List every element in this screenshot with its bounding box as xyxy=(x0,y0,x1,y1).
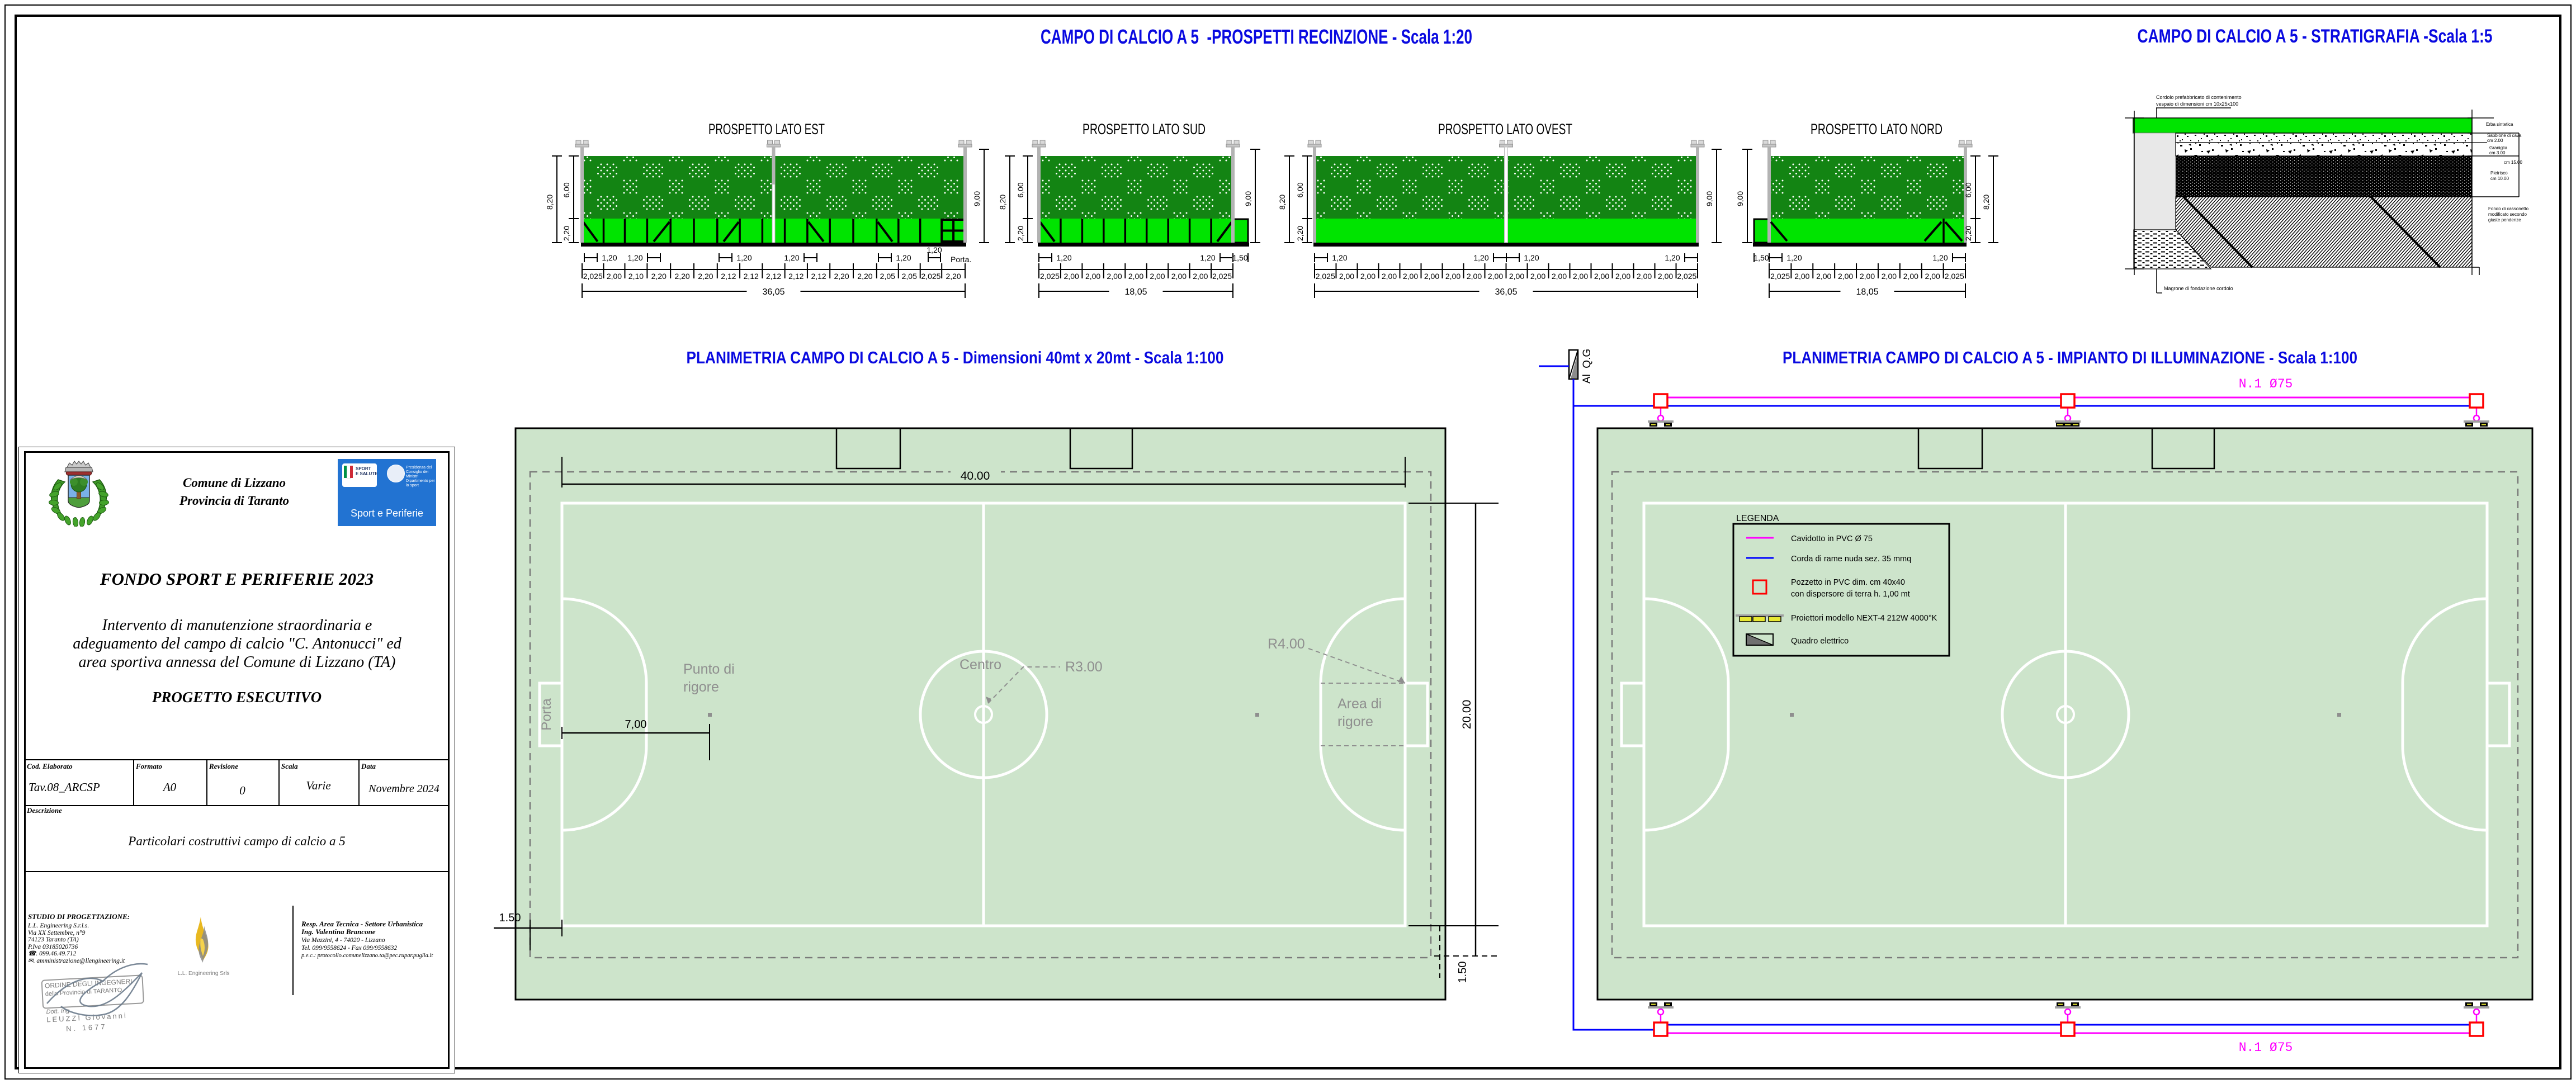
svg-text:2,05: 2,05 xyxy=(880,272,895,281)
svg-text:Quadro elettrico: Quadro elettrico xyxy=(1791,637,1849,646)
svg-text:Pozzetto in PVC dim. cm 40x40: Pozzetto in PVC dim. cm 40x40 xyxy=(1791,578,1905,587)
svg-text:2,025: 2,025 xyxy=(1677,272,1696,281)
svg-text:2,00: 2,00 xyxy=(1838,272,1853,281)
svg-text:Cordolo prefabbricato di conte: Cordolo prefabbricato di contenimento xyxy=(2156,94,2242,100)
svg-text:vespaio di dimensioni cm 10x25: vespaio di dimensioni cm 10x25x100 xyxy=(2156,101,2238,107)
svg-text:1,20: 1,20 xyxy=(1786,253,1802,262)
svg-text:2,20: 2,20 xyxy=(946,272,961,281)
svg-text:modificato secondo: modificato secondo xyxy=(2488,212,2527,217)
svg-text:2,025: 2,025 xyxy=(583,272,603,281)
svg-text:Sabbione di cava: Sabbione di cava xyxy=(2487,133,2522,138)
svg-text:2,12: 2,12 xyxy=(811,272,826,281)
svg-text:cm 10.00: cm 10.00 xyxy=(2490,176,2509,181)
svg-text:N.1 Ø75: N.1 Ø75 xyxy=(2239,1040,2293,1055)
svg-text:6,00: 6,00 xyxy=(1016,182,1025,197)
svg-text:2,00: 2,00 xyxy=(1107,272,1122,281)
svg-text:2,025: 2,025 xyxy=(1316,272,1335,281)
svg-text:18,05: 18,05 xyxy=(1856,287,1878,297)
svg-text:Pietrisco: Pietrisco xyxy=(2490,171,2508,176)
svg-text:2,00: 2,00 xyxy=(1658,272,1673,281)
svg-text:2,00: 2,00 xyxy=(1488,272,1503,281)
svg-text:1,50: 1,50 xyxy=(1753,253,1769,262)
svg-text:8,20: 8,20 xyxy=(545,195,554,210)
svg-text:2,00: 2,00 xyxy=(1445,272,1460,281)
svg-text:1,20: 1,20 xyxy=(1056,253,1071,262)
svg-text:2,00: 2,00 xyxy=(1794,272,1809,281)
svg-text:2,00: 2,00 xyxy=(1903,272,1918,281)
svg-text:36,05: 36,05 xyxy=(762,287,784,297)
svg-text:1,20: 1,20 xyxy=(1200,253,1215,262)
svg-text:Graniglia: Graniglia xyxy=(2489,145,2508,150)
svg-text:2,00: 2,00 xyxy=(1925,272,1940,281)
svg-text:2,00: 2,00 xyxy=(1882,272,1897,281)
svg-text:7,00: 7,00 xyxy=(625,718,647,731)
svg-text:2,00: 2,00 xyxy=(1085,272,1100,281)
svg-text:6,00: 6,00 xyxy=(562,182,571,197)
svg-text:Area di: Area di xyxy=(1337,696,1382,712)
svg-text:2,025: 2,025 xyxy=(1040,272,1060,281)
svg-text:8,20: 8,20 xyxy=(998,195,1007,210)
svg-text:2,12: 2,12 xyxy=(788,272,803,281)
svg-text:2,20: 2,20 xyxy=(834,272,849,281)
svg-text:PLANIMETRIA CAMPO DI CALCIO A: PLANIMETRIA CAMPO DI CALCIO A 5 - IMPIAN… xyxy=(1783,348,2357,367)
svg-text:9,00: 9,00 xyxy=(1705,191,1714,206)
svg-text:2,12: 2,12 xyxy=(766,272,781,281)
svg-text:2,00: 2,00 xyxy=(1360,272,1376,281)
svg-text:1,20: 1,20 xyxy=(736,253,751,262)
svg-text:Porta: Porta xyxy=(539,698,554,731)
svg-text:PROSPETTO LATO SUD: PROSPETTO LATO SUD xyxy=(1083,121,1206,138)
svg-text:36,05: 36,05 xyxy=(1495,287,1517,297)
svg-text:2,20: 2,20 xyxy=(1296,226,1304,241)
svg-text:2,00: 2,00 xyxy=(1637,272,1652,281)
svg-text:2,00: 2,00 xyxy=(1424,272,1439,281)
svg-text:1,20: 1,20 xyxy=(896,253,911,262)
svg-text:2,10: 2,10 xyxy=(628,272,644,281)
svg-text:2,20: 2,20 xyxy=(1016,226,1025,241)
svg-text:LEGENDA: LEGENDA xyxy=(1736,514,1779,523)
svg-text:2,00: 2,00 xyxy=(1552,272,1567,281)
svg-text:1,20: 1,20 xyxy=(627,253,642,262)
svg-text:2,00: 2,00 xyxy=(1064,272,1079,281)
svg-text:2,00: 2,00 xyxy=(1150,272,1165,281)
svg-text:PROSPETTO LATO NORD: PROSPETTO LATO NORD xyxy=(1811,121,1942,138)
svg-text:Magrone di fondazione cordolo: Magrone di fondazione cordolo xyxy=(2164,286,2233,291)
svg-text:Corda di rame nuda sez. 35 mmq: Corda di rame nuda sez. 35 mmq xyxy=(1791,555,1911,564)
svg-text:9,00: 9,00 xyxy=(1244,191,1252,206)
svg-text:2,12: 2,12 xyxy=(744,272,759,281)
svg-text:1,20: 1,20 xyxy=(784,253,799,262)
svg-text:2,00: 2,00 xyxy=(1171,272,1187,281)
svg-text:2,025: 2,025 xyxy=(921,272,940,281)
svg-text:rigore: rigore xyxy=(683,679,719,695)
svg-text:1,50: 1,50 xyxy=(1232,253,1247,262)
svg-text:cm 3.00: cm 3.00 xyxy=(2489,150,2506,155)
svg-text:1,20: 1,20 xyxy=(1665,253,1680,262)
svg-text:2,00: 2,00 xyxy=(1860,272,1875,281)
svg-text:20.00: 20.00 xyxy=(1460,700,1473,730)
svg-text:1,20: 1,20 xyxy=(602,253,617,262)
svg-text:2,025: 2,025 xyxy=(1212,272,1232,281)
svg-text:8,20: 8,20 xyxy=(1982,195,1991,210)
svg-text:2,12: 2,12 xyxy=(721,272,736,281)
svg-text:2,00: 2,00 xyxy=(1615,272,1630,281)
svg-text:2,00: 2,00 xyxy=(1403,272,1418,281)
svg-text:Fondo di cassonetto: Fondo di cassonetto xyxy=(2488,206,2529,211)
svg-text:R4.00: R4.00 xyxy=(1268,636,1305,652)
svg-text:giuste pendenze: giuste pendenze xyxy=(2488,217,2521,223)
svg-text:2,00: 2,00 xyxy=(1573,272,1588,281)
svg-text:con dispersore di terra h. 1,0: con dispersore di terra h. 1,00 mt xyxy=(1791,590,1910,599)
svg-text:PLANIMETRIA CAMPO DI CALCIO A: PLANIMETRIA CAMPO DI CALCIO A 5 - Dimens… xyxy=(687,348,1224,367)
svg-text:1,20: 1,20 xyxy=(1332,253,1347,262)
svg-text:2,00: 2,00 xyxy=(1193,272,1208,281)
svg-text:6,00: 6,00 xyxy=(1296,182,1304,197)
svg-text:2,00: 2,00 xyxy=(1509,272,1524,281)
svg-text:CAMPO DI CALCIO A 5 -PROSPETT: CAMPO DI CALCIO A 5 -PROSPETTI RECINZION… xyxy=(1041,25,1472,48)
svg-text:Proiettori modello NEXT-4 212W: Proiettori modello NEXT-4 212W 4000°K xyxy=(1791,614,1937,623)
svg-text:2,00: 2,00 xyxy=(1530,272,1545,281)
svg-text:2,05: 2,05 xyxy=(902,272,917,281)
svg-text:2,00: 2,00 xyxy=(1128,272,1143,281)
svg-text:1,20: 1,20 xyxy=(1473,253,1488,262)
svg-text:40.00: 40.00 xyxy=(961,470,990,482)
svg-text:2,00: 2,00 xyxy=(1339,272,1354,281)
svg-text:2,20: 2,20 xyxy=(1964,226,1973,241)
svg-text:PROSPETTO LATO OVEST: PROSPETTO LATO OVEST xyxy=(1438,121,1572,138)
svg-text:2,025: 2,025 xyxy=(1945,272,1964,281)
svg-text:PROSPETTO LATO EST: PROSPETTO LATO EST xyxy=(708,121,825,138)
svg-text:9,00: 9,00 xyxy=(972,191,981,206)
svg-text:1.50: 1.50 xyxy=(499,912,521,924)
svg-text:6,00: 6,00 xyxy=(1964,182,1973,197)
svg-text:2,00: 2,00 xyxy=(1382,272,1397,281)
svg-text:2,20: 2,20 xyxy=(562,226,571,241)
svg-text:2,00: 2,00 xyxy=(1594,272,1609,281)
svg-text:1,20: 1,20 xyxy=(1524,253,1539,262)
svg-text:2,00: 2,00 xyxy=(1467,272,1482,281)
svg-text:2,025: 2,025 xyxy=(1770,272,1790,281)
svg-text:18,05: 18,05 xyxy=(1124,287,1147,297)
svg-text:2,20: 2,20 xyxy=(651,272,667,281)
svg-text:8,20: 8,20 xyxy=(1278,195,1287,210)
svg-text:N.1 Ø75: N.1 Ø75 xyxy=(2239,377,2293,391)
svg-text:1.50: 1.50 xyxy=(1457,962,1469,983)
svg-text:rigore: rigore xyxy=(1337,714,1373,730)
svg-text:9,00: 9,00 xyxy=(1736,191,1745,206)
svg-text:2,20: 2,20 xyxy=(674,272,689,281)
svg-text:2,20: 2,20 xyxy=(857,272,872,281)
svg-text:2,20: 2,20 xyxy=(698,272,713,281)
svg-text:Centro: Centro xyxy=(959,657,1001,673)
svg-text:2,00: 2,00 xyxy=(1816,272,1831,281)
svg-text:Punto di: Punto di xyxy=(683,661,735,677)
svg-text:1,20: 1,20 xyxy=(1932,253,1948,262)
svg-text:CAMPO DI CALCIO A 5 - STRATIGR: CAMPO DI CALCIO A 5 - STRATIGRAFIA -Scal… xyxy=(2138,26,2493,47)
svg-text:Cavidotto in PVC Ø 75: Cavidotto in PVC Ø 75 xyxy=(1791,534,1873,543)
svg-text:2,00: 2,00 xyxy=(607,272,622,281)
svg-text:R3.00: R3.00 xyxy=(1065,659,1103,675)
svg-text:1,20: 1,20 xyxy=(927,245,942,254)
svg-text:Erba sintetica: Erba sintetica xyxy=(2486,122,2513,127)
svg-text:cm 2.00: cm 2.00 xyxy=(2487,138,2503,143)
svg-text:cm 15.00: cm 15.00 xyxy=(2504,160,2522,165)
svg-text:Al Q.G: Al Q.G xyxy=(1581,349,1593,384)
svg-text:Porta.: Porta. xyxy=(951,255,971,264)
